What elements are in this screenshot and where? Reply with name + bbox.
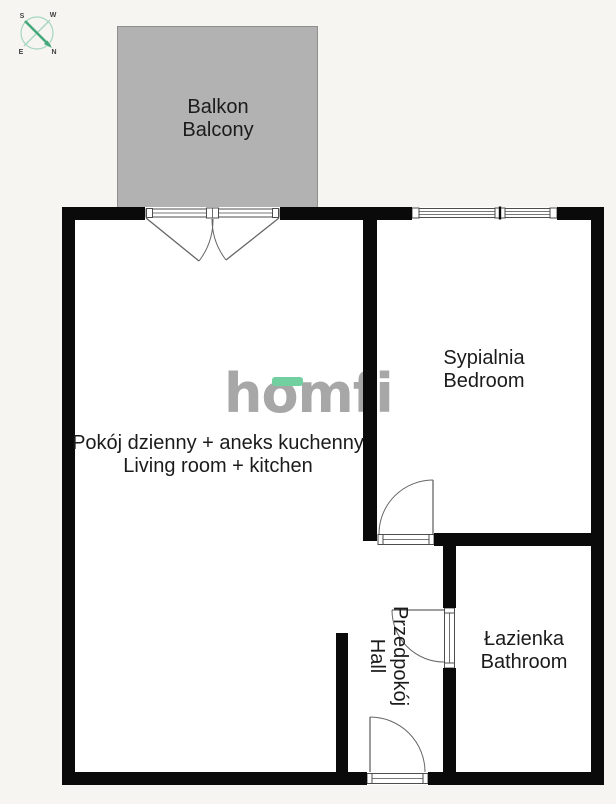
bedroom-window (412, 207, 557, 220)
compass-icon: S W E N (19, 12, 57, 56)
balcony-area (118, 27, 318, 208)
homfi-logo: homfi (224, 367, 393, 421)
compass-letter-n: N (51, 49, 56, 56)
compass-letter-w: W (50, 12, 57, 19)
compass-letter-s: S (20, 13, 25, 20)
compass-letter-e: E (19, 49, 24, 56)
homfi-logo-accent-bar (272, 377, 303, 386)
apartment-interior (62, 207, 604, 785)
apartment-floor-plan: S W E N (0, 0, 616, 804)
